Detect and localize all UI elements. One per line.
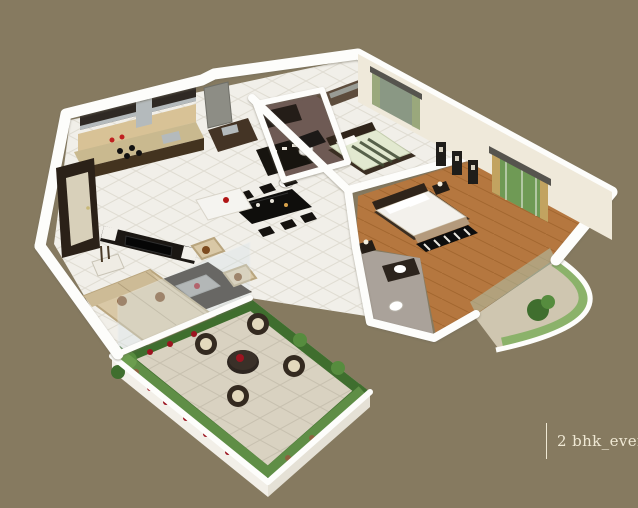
- floorplan-svg: [0, 0, 638, 508]
- round-table: [227, 350, 259, 374]
- caption: 2 bhk_even: [546, 423, 638, 459]
- caption-text: 2 bhk_even: [557, 432, 638, 450]
- mid-wall-window: [204, 82, 232, 128]
- wicker-chair: [195, 333, 217, 355]
- basin: [394, 265, 406, 273]
- wicker-chair: [283, 355, 305, 377]
- entrance-door: [56, 158, 100, 258]
- wicker-chair: [227, 385, 249, 407]
- floorplan-render: 2 bhk_even: [0, 0, 638, 508]
- wicker-chair: [247, 313, 269, 335]
